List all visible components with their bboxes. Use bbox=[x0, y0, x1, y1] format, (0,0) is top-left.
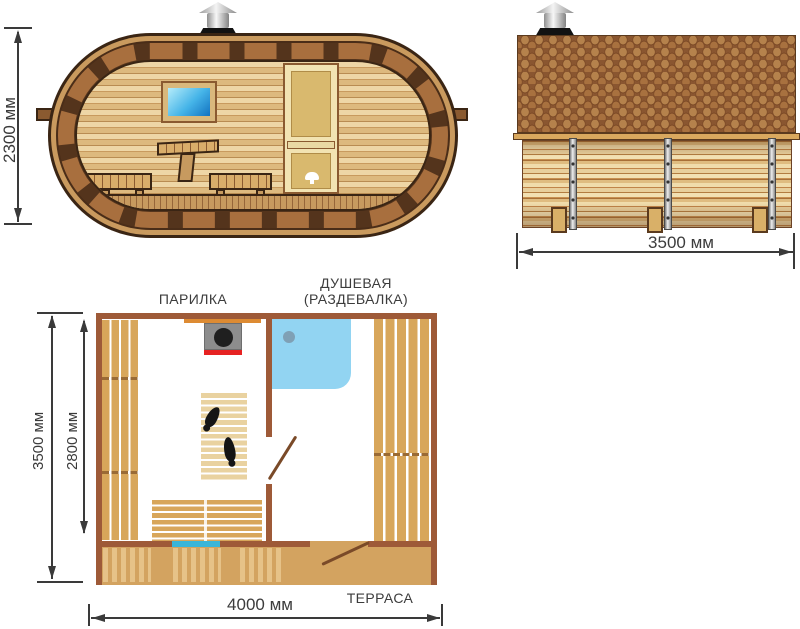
bench-joint bbox=[102, 471, 140, 474]
dim-3500plan-line bbox=[51, 316, 53, 579]
window-glass bbox=[168, 88, 210, 116]
bench-joint bbox=[374, 453, 431, 456]
shingle-roof bbox=[517, 35, 796, 133]
dim-2300-tick-top bbox=[4, 27, 32, 29]
dim-3500side-arrow-left bbox=[520, 248, 533, 256]
left-bench-top bbox=[85, 173, 152, 190]
support-foot bbox=[551, 207, 567, 233]
metal-strap bbox=[664, 138, 672, 230]
duckboard-mat bbox=[201, 393, 247, 481]
dim-2300-arrow-up bbox=[14, 30, 22, 43]
dim-3500plan-arrow-down bbox=[48, 566, 56, 579]
metal-strap bbox=[768, 138, 776, 230]
partition-wall-lower bbox=[266, 484, 272, 541]
terrace-plank-group bbox=[103, 548, 151, 582]
shower-drain-icon bbox=[283, 331, 295, 343]
chimney-vent-cap-icon bbox=[199, 2, 237, 13]
dim-2800-label: 2800 мм bbox=[63, 396, 83, 486]
dim-3500plan-label: 3500 мм bbox=[29, 396, 49, 486]
shower-room-label-line2: (РАЗДЕВАЛКА) bbox=[286, 291, 426, 307]
bench-gap bbox=[204, 500, 207, 541]
shower-room-label-line1: ДУШЕВАЯ bbox=[286, 275, 426, 291]
door-handle-rail bbox=[287, 141, 335, 149]
steam-room-lower-bench bbox=[152, 500, 262, 541]
terrace-right-wall bbox=[431, 547, 437, 585]
dim-4000-arrow-right bbox=[427, 614, 440, 622]
doormat bbox=[172, 540, 220, 547]
dim-3500side-arrow-right bbox=[779, 248, 792, 256]
steam-room-side-bench bbox=[102, 320, 140, 540]
dim-2300-arrow-down bbox=[14, 208, 22, 221]
dim-2800-line bbox=[83, 321, 85, 533]
support-foot bbox=[752, 207, 768, 233]
dim-3500plan-arrow-up bbox=[48, 315, 56, 328]
terrace-plank-group bbox=[240, 548, 285, 582]
dim-4000-tick-left bbox=[88, 604, 90, 626]
dim-4000-tick-right bbox=[441, 604, 443, 626]
dim-3500plan-tick-bottom bbox=[37, 581, 83, 583]
shower-room-bench bbox=[374, 319, 431, 541]
dim-2300-tick-bottom bbox=[4, 223, 32, 225]
barrel-outline bbox=[48, 33, 458, 238]
dim-4000-label: 4000 мм bbox=[200, 595, 320, 615]
terrace-label: ТЕРРАСА bbox=[330, 590, 430, 606]
bench-joint bbox=[102, 377, 140, 380]
barrel-interior bbox=[75, 60, 431, 211]
dim-2800-arrow-down bbox=[80, 521, 88, 534]
door-panel-top bbox=[291, 71, 331, 137]
chimney-vent-body bbox=[207, 13, 229, 28]
dim-3500plan-tick-top bbox=[37, 312, 83, 314]
sauna-drawing-sheet: 2300 мм 3500 мм ПАРИЛКА ДУШЕВАЯ (РАЗДЕВА… bbox=[0, 0, 800, 629]
door-panel-bottom bbox=[291, 153, 331, 189]
dim-2800-arrow-up bbox=[80, 319, 88, 332]
chimney-vent-cap-icon bbox=[536, 2, 574, 13]
steam-room-label: ПАРИЛКА bbox=[138, 291, 248, 307]
support-foot bbox=[647, 207, 663, 233]
dim-4000-line bbox=[91, 617, 440, 619]
metal-strap bbox=[569, 138, 577, 230]
dim-3500side-label: 3500 мм bbox=[631, 233, 731, 253]
dim-4000-arrow-left bbox=[92, 614, 105, 622]
stove-base bbox=[204, 350, 242, 355]
dim-3500side-tick-left bbox=[516, 233, 518, 269]
brand-logo-icon bbox=[305, 172, 319, 180]
dim-3500side-tick-right bbox=[793, 233, 795, 269]
dim-2300-label: 2300 мм bbox=[0, 85, 20, 175]
brand-logo-icon bbox=[310, 180, 314, 184]
sauna-stove bbox=[204, 323, 242, 350]
sauna-floor-boards bbox=[77, 194, 429, 209]
terrace-left-wall bbox=[96, 547, 102, 585]
shower-tray bbox=[272, 319, 351, 389]
table-leg bbox=[177, 153, 195, 182]
stove-top-icon bbox=[214, 328, 233, 347]
terrace-plank-group bbox=[173, 548, 221, 582]
chimney-vent-body bbox=[544, 13, 566, 28]
sauna-door bbox=[283, 63, 339, 194]
sauna-window bbox=[161, 81, 217, 123]
right-bench-top bbox=[209, 173, 272, 190]
roof-eave-strip bbox=[513, 133, 800, 140]
